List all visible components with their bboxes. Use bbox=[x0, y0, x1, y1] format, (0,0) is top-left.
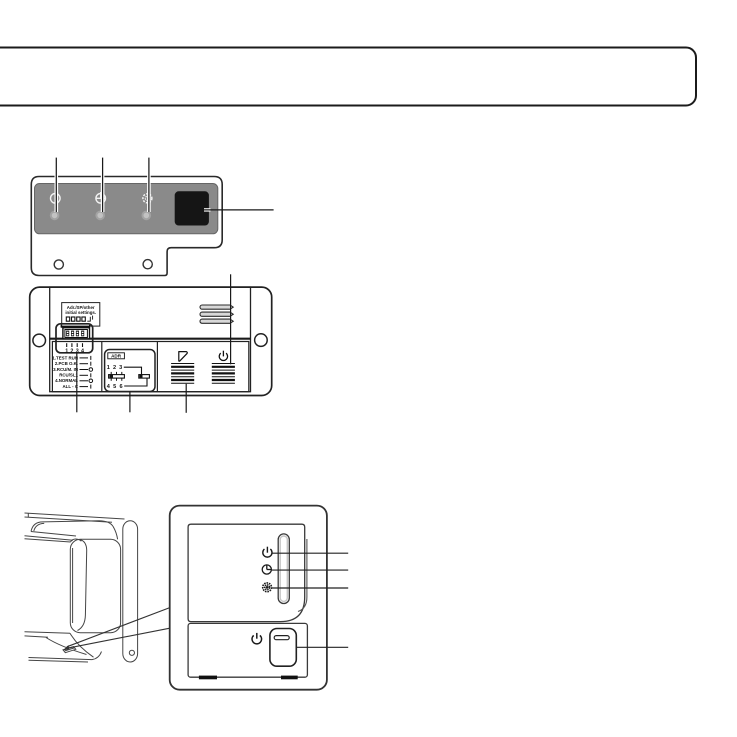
svg-text:RCU/SL1: RCU/SL1 bbox=[59, 373, 78, 378]
svg-text:6: 6 bbox=[120, 384, 123, 390]
svg-text:initial settings.: initial settings. bbox=[65, 310, 96, 315]
svg-text:1: 1 bbox=[107, 365, 110, 371]
svg-text:2: 2 bbox=[113, 365, 116, 371]
svg-text:1.TEST RUN: 1.TEST RUN bbox=[52, 355, 78, 360]
svg-text:2: 2 bbox=[70, 348, 73, 354]
svg-text:4.NORMAL: 4.NORMAL bbox=[55, 378, 78, 383]
svg-text:1: 1 bbox=[65, 348, 68, 354]
svg-text:ADR: ADR bbox=[111, 354, 122, 359]
svg-text:3: 3 bbox=[119, 365, 122, 371]
svg-text:3.RCU/M. IN: 3.RCU/M. IN bbox=[53, 367, 78, 372]
svg-text:5: 5 bbox=[113, 384, 116, 390]
svg-text:4: 4 bbox=[81, 348, 84, 354]
svg-text:2.PCB O.K.: 2.PCB O.K. bbox=[55, 361, 78, 366]
